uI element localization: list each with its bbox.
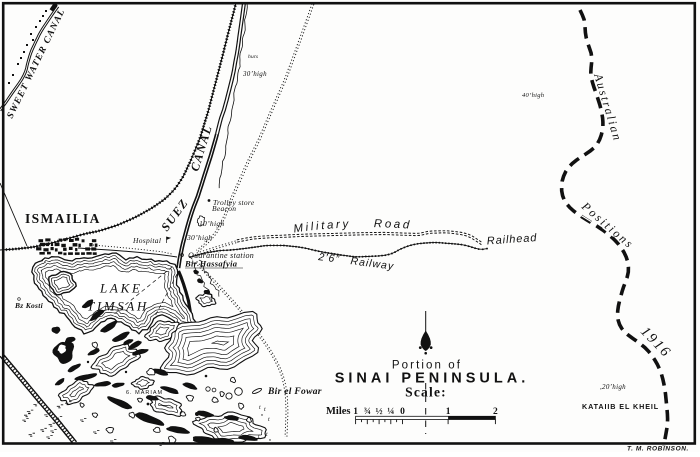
svg-text:2: 2 (493, 407, 498, 417)
svg-text:40’high: 40’high (522, 92, 544, 99)
svg-text:¾: ¾ (364, 407, 371, 417)
svg-text:huts: huts (248, 54, 258, 60)
svg-text:0: 0 (400, 407, 405, 417)
svg-text:Bir Hassafyia: Bir Hassafyia (184, 259, 238, 269)
svg-text:t: t (268, 417, 270, 423)
svg-text:TIMSAH: TIMSAH (87, 299, 149, 314)
svg-text:6. MARIAM: 6. MARIAM (126, 390, 163, 396)
svg-text:ISMAILIA: ISMAILIA (25, 211, 101, 226)
svg-text:10’high: 10’high (199, 219, 224, 228)
svg-text:t: t (266, 432, 268, 438)
svg-text:1: 1 (353, 407, 358, 417)
svg-text:1: 1 (446, 407, 451, 417)
svg-text:KATAIIB EL KHEIL: KATAIIB EL KHEIL (582, 402, 659, 411)
svg-text:,20’high: ,20’high (600, 383, 626, 391)
svg-text:Scale:: Scale: (405, 385, 447, 400)
svg-text:T. M. ROBINSON.: T. M. ROBINSON. (627, 446, 689, 453)
svg-text:Beacon: Beacon (212, 204, 236, 213)
svg-text:Miles: Miles (326, 406, 351, 417)
svg-text:½: ½ (375, 407, 382, 417)
svg-text:Bir el Fowar: Bir el Fowar (267, 387, 322, 397)
svg-text:LAKE: LAKE (99, 281, 143, 296)
svg-text:Bz Kosti: Bz Kosti (14, 301, 44, 310)
svg-text:¼: ¼ (387, 407, 394, 417)
svg-text:30’high: 30’high (186, 233, 212, 242)
svg-text:30’high: 30’high (242, 70, 267, 78)
svg-text:t: t (264, 407, 266, 413)
svg-text:Hospital: Hospital (132, 236, 161, 245)
svg-text:t: t (258, 434, 260, 440)
svg-text:t: t (259, 405, 261, 411)
